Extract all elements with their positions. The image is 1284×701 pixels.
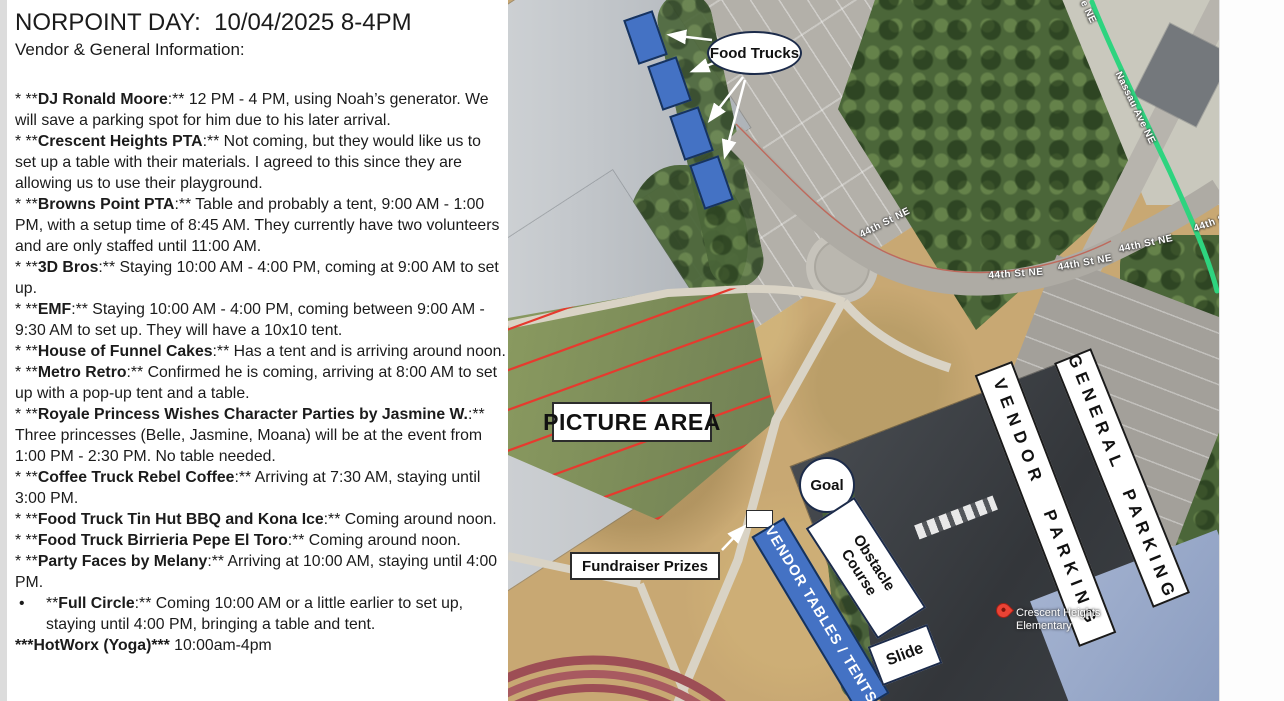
map-pin (996, 603, 1011, 618)
vendor-item: * **Party Faces by Melany:** Arriving at… (15, 551, 506, 593)
path-field-to-roundabout (746, 289, 844, 302)
page-subtitle: Vendor & General Information: (15, 39, 506, 61)
page-title: NORPOINT DAY: 10/04/2025 8-4PM (15, 7, 506, 38)
fundraiser-prizes-label: Fundraiser Prizes (570, 552, 720, 580)
picture-area-text: PICTURE AREA (543, 409, 721, 436)
vendor-item: * **Food Truck Tin Hut BBQ and Kona Ice:… (15, 509, 506, 530)
vendor-item: •**Full Circle:** Coming 10:00 AM or a l… (15, 593, 506, 635)
goal-text: Goal (810, 477, 843, 494)
vendor-info-document: NORPOINT DAY: 10/04/2025 8-4PM Vendor & … (7, 0, 508, 701)
page-right-margin (1219, 0, 1284, 701)
campus-map: Food Trucks PICTURE AREA Goal Fundraiser… (508, 0, 1219, 701)
path-field-top (508, 289, 746, 325)
vendor-item: * **Metro Retro:** Confirmed he is comin… (15, 362, 506, 404)
vendor-list: * **DJ Ronald Moore:** 12 PM - 4 PM, usi… (15, 89, 506, 656)
running-track (508, 660, 793, 701)
vendor-item: * **Royale Princess Wishes Character Par… (15, 404, 506, 467)
fundraiser-prizes-text: Fundraiser Prizes (582, 558, 708, 575)
pin-icon (993, 600, 1014, 621)
vendor-item: * **Coffee Truck Rebel Coffee:** Arrivin… (15, 467, 506, 509)
food-trucks-label: Food Trucks (707, 31, 802, 75)
map-pin-label: Crescent HeightsElementary (1016, 607, 1100, 633)
food-trucks-text: Food Trucks (710, 45, 799, 62)
vendor-item: * **Crescent Heights PTA:** Not coming, … (15, 131, 506, 194)
vendor-item: * **Food Truck Birrieria Pepe El Toro:**… (15, 530, 506, 551)
vendor-item: * **House of Funnel Cakes:** Has a tent … (15, 341, 506, 362)
vendor-item: ***HotWorx (Yoga)*** 10:00am-4pm (15, 635, 506, 656)
vendor-item: * **Browns Point PTA:** Table and probab… (15, 194, 506, 257)
page-left-edge (0, 0, 7, 701)
44th-st-road (733, 135, 1219, 284)
path-to-building (844, 302, 950, 368)
slide-text: Slide (884, 640, 926, 671)
vendor-item: * **DJ Ronald Moore:** 12 PM - 4 PM, usi… (15, 89, 506, 131)
vendor-item: * **EMF:** Staying 10:00 AM - 4:00 PM, c… (15, 299, 506, 341)
picture-area-label: PICTURE AREA (552, 402, 712, 442)
vendor-item: * **3D Bros:** Staying 10:00 AM - 4:00 P… (15, 257, 506, 299)
